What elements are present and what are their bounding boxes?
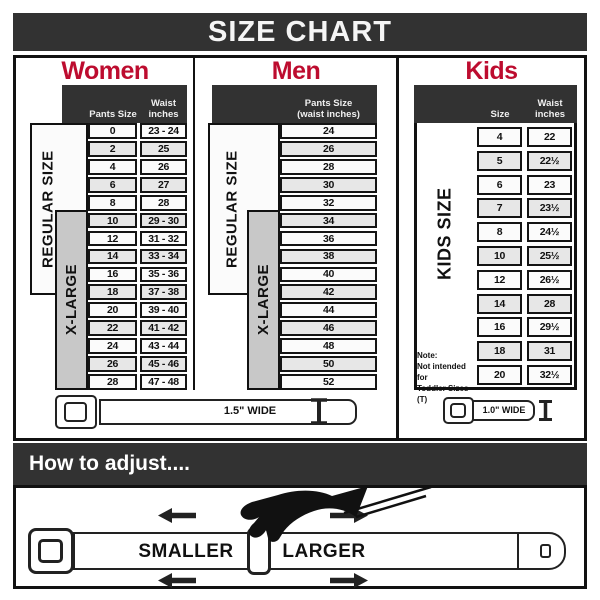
waist-cell: 26½ — [527, 270, 572, 290]
table-row: 16 35 - 36 — [88, 267, 187, 283]
waist-cell: 27 — [140, 177, 187, 193]
waist-cell: 28 — [527, 294, 572, 314]
kids-section-title: Kids — [399, 57, 584, 85]
divider-women-men — [193, 55, 195, 390]
pants-size-cell: 36 — [280, 231, 377, 247]
pants-size-cell: 6 — [88, 177, 137, 193]
pants-size-cell: 40 — [280, 267, 377, 283]
waist-cell: 23 - 24 — [140, 123, 187, 139]
table-row: 5 22½ — [477, 151, 573, 171]
waist-cell: 39 - 40 — [140, 302, 187, 318]
waist-cell: 45 - 46 — [140, 356, 187, 372]
kids-size-table: 4 22 5 22½ 6 23 7 23½ 8 24½ — [477, 127, 573, 385]
waist-cell: 28 — [140, 195, 187, 211]
waist-cell: 24½ — [527, 222, 572, 242]
pants-size-cell: 22 — [88, 320, 137, 336]
men-table-header: Pants Size (waist inches) — [212, 85, 377, 123]
pants-size-cell: 30 — [280, 177, 377, 193]
pants-size-cell: 32 — [280, 195, 377, 211]
pants-size-cell: 18 — [88, 284, 137, 300]
waist-cell: 47 - 48 — [140, 374, 187, 390]
arrow-right-icon — [330, 573, 368, 588]
adult-belt-width-label: 1.5" WIDE — [200, 405, 300, 417]
pants-size-cell: 20 — [88, 302, 137, 318]
pants-size-cell: 52 — [280, 374, 377, 390]
table-row: 40 — [280, 267, 377, 283]
waist-cell: 26 — [140, 159, 187, 175]
table-row: 10 29 - 30 — [88, 213, 187, 229]
table-row: 0 23 - 24 — [88, 123, 187, 139]
waist-cell: 33 - 34 — [140, 249, 187, 265]
waist-cell: 22½ — [527, 151, 572, 171]
adjust-buckle-inner-icon — [38, 539, 63, 563]
width-measure-icon — [537, 399, 554, 422]
arrow-left-icon — [158, 508, 196, 523]
table-row: 2 25 — [88, 141, 187, 157]
pants-size-cell: 4 — [88, 159, 137, 175]
pants-size-cell: 48 — [280, 338, 377, 354]
table-row: 32 — [280, 195, 377, 211]
table-row: 46 — [280, 320, 377, 336]
table-row: 50 — [280, 356, 377, 372]
table-row: 4 26 — [88, 159, 187, 175]
pants-size-cell: 28 — [88, 374, 137, 390]
pants-size-cell: 16 — [88, 267, 137, 283]
table-row: 24 — [280, 123, 377, 139]
women-size-table: 0 23 - 24 2 25 4 26 6 27 8 28 — [88, 123, 187, 390]
waist-cell: 35 - 36 — [140, 267, 187, 283]
size-cell: 4 — [477, 127, 522, 147]
table-row: 38 — [280, 249, 377, 265]
table-row: 34 — [280, 213, 377, 229]
waist-cell: 23 — [527, 175, 572, 195]
pants-size-cell: 26 — [88, 356, 137, 372]
waist-cell: 31 — [527, 341, 572, 361]
waist-cell: 32½ — [527, 365, 572, 385]
women-xlarge-box: X-LARGE — [55, 210, 88, 390]
table-row: 52 — [280, 374, 377, 390]
how-to-adjust-title: How to adjust.... — [13, 452, 190, 476]
table-row: 22 41 - 42 — [88, 320, 187, 336]
size-cell: 8 — [477, 222, 522, 242]
pants-size-cell: 8 — [88, 195, 137, 211]
size-cell: 10 — [477, 246, 522, 266]
table-row: 6 23 — [477, 175, 573, 195]
table-row: 28 47 - 48 — [88, 374, 187, 390]
women-xlarge-label: X-LARGE — [57, 212, 86, 388]
pants-size-cell: 10 — [88, 213, 137, 229]
table-row: 12 26½ — [477, 270, 573, 290]
width-measure-icon — [308, 397, 330, 426]
kids-table-header: Size Waist inches — [414, 85, 577, 123]
table-row: 20 32½ — [477, 365, 573, 385]
table-row: 8 28 — [88, 195, 187, 211]
table-row: 26 45 - 46 — [88, 356, 187, 372]
size-cell: 20 — [477, 365, 522, 385]
waist-cell: 25½ — [527, 246, 572, 266]
pants-size-cell: 28 — [280, 159, 377, 175]
divider-men-kids — [396, 55, 399, 441]
how-to-adjust-bar: How to adjust.... — [13, 443, 587, 485]
pants-size-cell: 24 — [280, 123, 377, 139]
men-xlarge-label: X-LARGE — [249, 212, 278, 388]
pants-size-cell: 34 — [280, 213, 377, 229]
table-row: 16 29½ — [477, 317, 573, 337]
size-cell: 16 — [477, 317, 522, 337]
table-row: 14 33 - 34 — [88, 249, 187, 265]
waist-cell: 29 - 30 — [140, 213, 187, 229]
belt-tip-hole-icon — [540, 544, 551, 558]
size-cell: 14 — [477, 294, 522, 314]
table-row: 8 24½ — [477, 222, 573, 242]
women-section-title: Women — [16, 57, 194, 85]
table-row: 10 25½ — [477, 246, 573, 266]
table-row: 20 39 - 40 — [88, 302, 187, 318]
table-row: 48 — [280, 338, 377, 354]
arrow-left-icon — [158, 573, 196, 588]
men-section-title: Men — [196, 57, 396, 85]
table-row: 6 27 — [88, 177, 187, 193]
pants-size-cell: 14 — [88, 249, 137, 265]
pants-size-cell: 44 — [280, 302, 377, 318]
women-table-header: Pants Size Waist inches — [62, 85, 187, 123]
pants-size-cell: 46 — [280, 320, 377, 336]
men-xlarge-box: X-LARGE — [247, 210, 280, 390]
pants-size-cell: 12 — [88, 231, 137, 247]
men-regular-size-label: REGULAR SIZE — [218, 125, 246, 293]
size-cell: 5 — [477, 151, 522, 171]
waist-cell: 31 - 32 — [140, 231, 187, 247]
table-row: 18 37 - 38 — [88, 284, 187, 300]
kids-size-header: Size — [477, 110, 523, 121]
men-pants-size-header: Pants Size (waist inches) — [280, 99, 377, 120]
size-cell: 7 — [477, 198, 522, 218]
table-row: 44 — [280, 302, 377, 318]
waist-cell: 29½ — [527, 317, 572, 337]
pants-size-cell: 38 — [280, 249, 377, 265]
kids-belt-width-label: 1.0" WIDE — [476, 405, 532, 415]
table-row: 4 22 — [477, 127, 573, 147]
adult-buckle-inner-icon — [64, 402, 87, 422]
larger-label: LARGER — [278, 541, 370, 563]
pants-size-cell: 2 — [88, 141, 137, 157]
title-bar: SIZE CHART — [13, 13, 587, 51]
pants-size-cell: 26 — [280, 141, 377, 157]
waist-cell: 25 — [140, 141, 187, 157]
kids-waist-header: Waist inches — [527, 99, 573, 120]
table-row: 12 31 - 32 — [88, 231, 187, 247]
pants-size-cell: 50 — [280, 356, 377, 372]
size-cell: 6 — [477, 175, 522, 195]
waist-cell: 23½ — [527, 198, 572, 218]
pants-size-cell: 42 — [280, 284, 377, 300]
men-size-table: 24 26 28 30 32 34 36 — [280, 123, 377, 390]
page-title: SIZE CHART — [208, 16, 392, 49]
women-waist-header: Waist inches — [140, 99, 187, 120]
table-row: 24 43 - 44 — [88, 338, 187, 354]
waist-cell: 43 - 44 — [140, 338, 187, 354]
size-chart-page: SIZE CHART Women Men Kids Pants Size Wai… — [0, 0, 600, 600]
table-row: 42 — [280, 284, 377, 300]
table-row: 36 — [280, 231, 377, 247]
hand-icon — [228, 484, 433, 542]
pants-size-cell: 24 — [88, 338, 137, 354]
table-row: 26 — [280, 141, 377, 157]
size-cell: 12 — [477, 270, 522, 290]
table-row: 28 — [280, 159, 377, 175]
table-row: 14 28 — [477, 294, 573, 314]
waist-cell: 37 - 38 — [140, 284, 187, 300]
table-row: 18 31 — [477, 341, 573, 361]
table-row: 30 — [280, 177, 377, 193]
table-row: 7 23½ — [477, 198, 573, 218]
pants-size-cell: 0 — [88, 123, 137, 139]
kids-buckle-inner-icon — [450, 403, 466, 418]
women-pants-size-header: Pants Size — [88, 110, 138, 121]
smaller-label: SMALLER — [130, 541, 242, 563]
size-cell: 18 — [477, 341, 522, 361]
waist-cell: 22 — [527, 127, 572, 147]
kids-size-side-label: KIDS SIZE — [416, 123, 474, 345]
waist-cell: 41 - 42 — [140, 320, 187, 336]
